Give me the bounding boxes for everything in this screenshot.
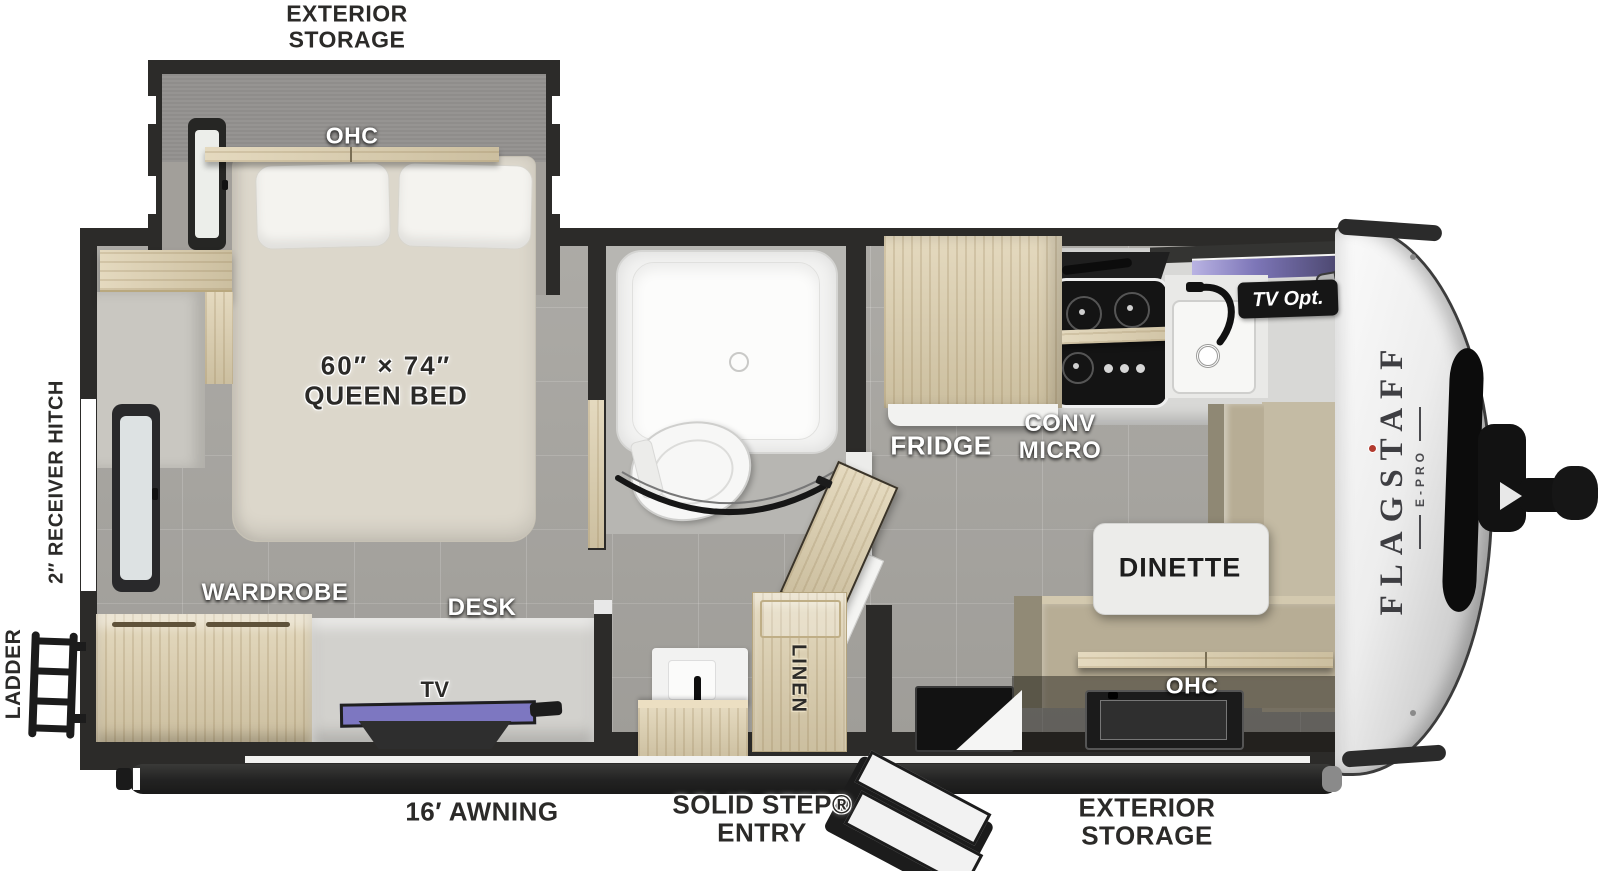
wardrobe-door-slot: [112, 622, 196, 627]
awning-end-cap: [1322, 766, 1342, 792]
ladder-rung: [30, 724, 72, 732]
brand-logo: FLAGSTAFF E-PRO: [1363, 308, 1437, 648]
ladder-rail: [28, 631, 40, 737]
label-conv-1: CONV: [1024, 410, 1095, 438]
label-awning: 16′ AWNING: [405, 797, 558, 828]
desk-divider-wall: [594, 612, 612, 745]
slide-trim: [552, 96, 560, 124]
cap-rivet: [1410, 254, 1416, 260]
tv-base: [352, 721, 518, 749]
burner-center: [1079, 309, 1085, 315]
label-dinette-ohc: OHC: [1166, 673, 1219, 700]
awning-bracket-gap: [133, 768, 140, 790]
brand-rule: [1419, 515, 1421, 549]
label-exterior-storage-bottom-1: EXTERIOR: [1079, 793, 1216, 824]
label-entry-2: ENTRY: [717, 818, 807, 849]
pillow: [255, 162, 391, 249]
ladder-mount: [72, 714, 86, 723]
label-wardrobe: WARDROBE: [202, 579, 349, 607]
bathtub-inner: [632, 262, 820, 440]
pillow: [397, 162, 533, 249]
label-exterior-storage-top-2: STORAGE: [289, 27, 406, 54]
tv-mount: [530, 701, 563, 717]
label-tv: TV: [420, 677, 449, 703]
wardrobe-cabinet: [96, 614, 312, 742]
label-exterior-storage-top-1: EXTERIOR: [286, 1, 408, 28]
brand-name: FLAGSTAFF: [1374, 341, 1411, 616]
awning-rail: [245, 756, 1310, 763]
label-bed-type: QUEEN BED: [304, 381, 468, 412]
label-linen: LINEN: [787, 644, 810, 714]
cap-rivet: [1410, 710, 1416, 716]
linen-cabinet-top: [760, 600, 841, 638]
brand-model-row: E-PRO: [1413, 407, 1427, 549]
label-dinette: DINETTE: [1119, 553, 1242, 584]
burner-center: [1127, 305, 1133, 311]
tongue-jack-body: [1478, 424, 1526, 532]
ladder-rung: [31, 697, 73, 705]
slide-trim: [552, 176, 560, 214]
dinette-ohc-split: [1205, 652, 1207, 668]
label-desk: DESK: [448, 594, 517, 622]
label-entry-1: SOLID STEP®: [672, 790, 851, 821]
vanity-sink: [668, 660, 716, 700]
fridge-cabinet: [884, 236, 1062, 408]
stove-knob: [1120, 364, 1129, 373]
wardrobe-door-slot: [206, 622, 290, 627]
slide-trim: [148, 176, 156, 214]
ladder-rung: [32, 667, 74, 675]
label-bedroom-ohc: OHC: [326, 123, 379, 150]
burner-center: [1073, 363, 1079, 369]
brand-model: E-PRO: [1413, 449, 1427, 507]
ladder-rung: [33, 637, 75, 645]
label-bed-size: 60″ × 74″: [321, 351, 451, 382]
vanity-cabinet: [638, 700, 748, 760]
label-conv-2: MICRO: [1019, 437, 1102, 465]
slide-trim: [148, 96, 156, 124]
awning-bracket: [116, 768, 132, 790]
tub-drain: [729, 352, 749, 372]
entry-wall-stub: [866, 605, 892, 745]
storage-hatch-inner: [1100, 700, 1227, 740]
label-exterior-storage-bottom-2: STORAGE: [1081, 821, 1213, 852]
tongue-jack-handle: [1552, 466, 1598, 520]
label-fridge: FRIDGE: [890, 431, 991, 462]
stove-knob: [1136, 364, 1145, 373]
window-latch: [152, 488, 158, 500]
divider-cap: [594, 600, 612, 614]
label-receiver-hitch: 2″ RECEIVER HITCH: [46, 380, 69, 584]
ladder-mount: [72, 642, 86, 651]
rear-window-glass: [120, 416, 152, 580]
brand-rule: [1419, 407, 1421, 441]
hatch-latch: [1108, 692, 1118, 699]
label-ladder: LADDER: [2, 629, 26, 720]
stove-knob: [1104, 364, 1113, 373]
label-tv-opt: TV Opt.: [1252, 286, 1324, 311]
tv-opt-badge: TV Opt.: [1237, 279, 1338, 318]
bedside-cabinet-side: [205, 292, 233, 384]
ladder-icon: [28, 631, 78, 739]
floorplan-canvas: FLAGSTAFF E-PRO EXTERIOR STORAGE OHC 60″…: [0, 0, 1600, 871]
window-latch: [222, 180, 228, 190]
bedside-shelf: [100, 250, 232, 298]
rear-window-slot: [81, 396, 96, 594]
bath-right-wall: [846, 240, 866, 455]
